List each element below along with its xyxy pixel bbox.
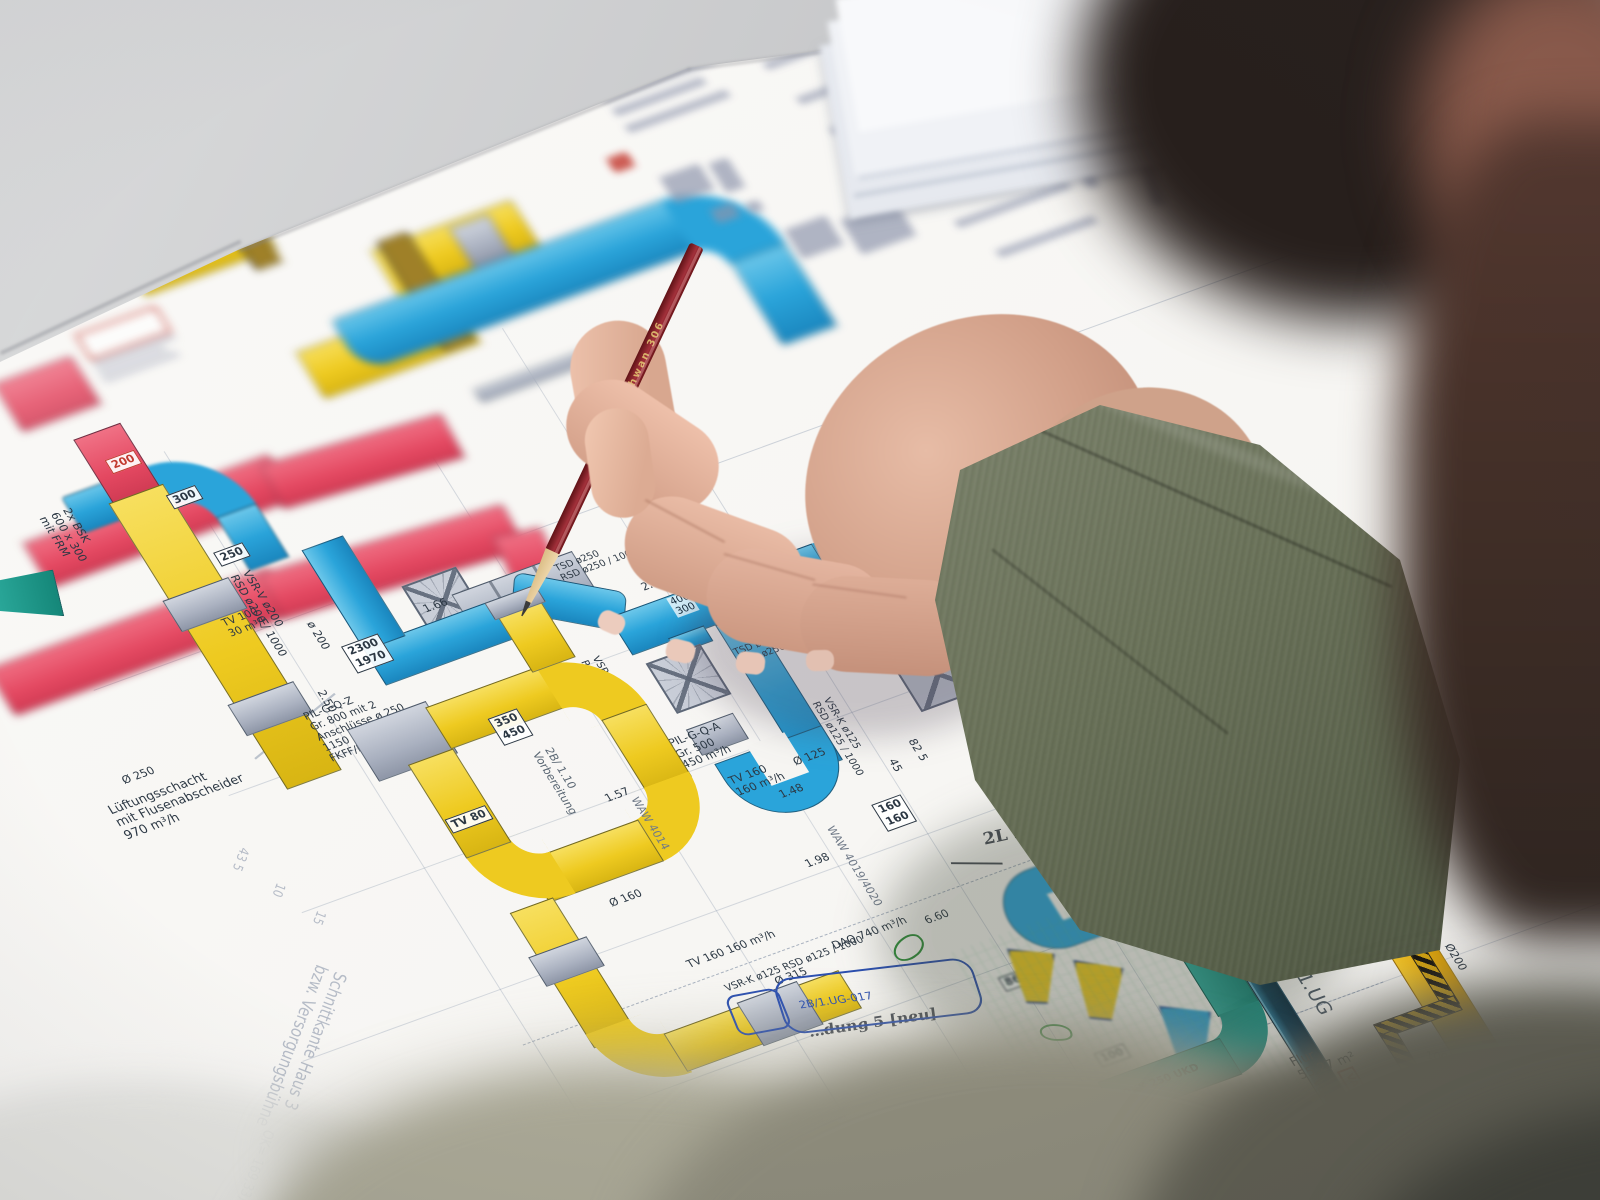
fingernail (735, 651, 766, 676)
fingernail (806, 650, 835, 672)
photo-scene: DAQ 650 m³/h 450 550 450 m³/h DAQ TSD ø2… (0, 0, 1600, 1200)
fingernail (664, 637, 697, 665)
person-neck-shoulder-blur (1400, 120, 1600, 940)
fingernail (595, 607, 628, 637)
